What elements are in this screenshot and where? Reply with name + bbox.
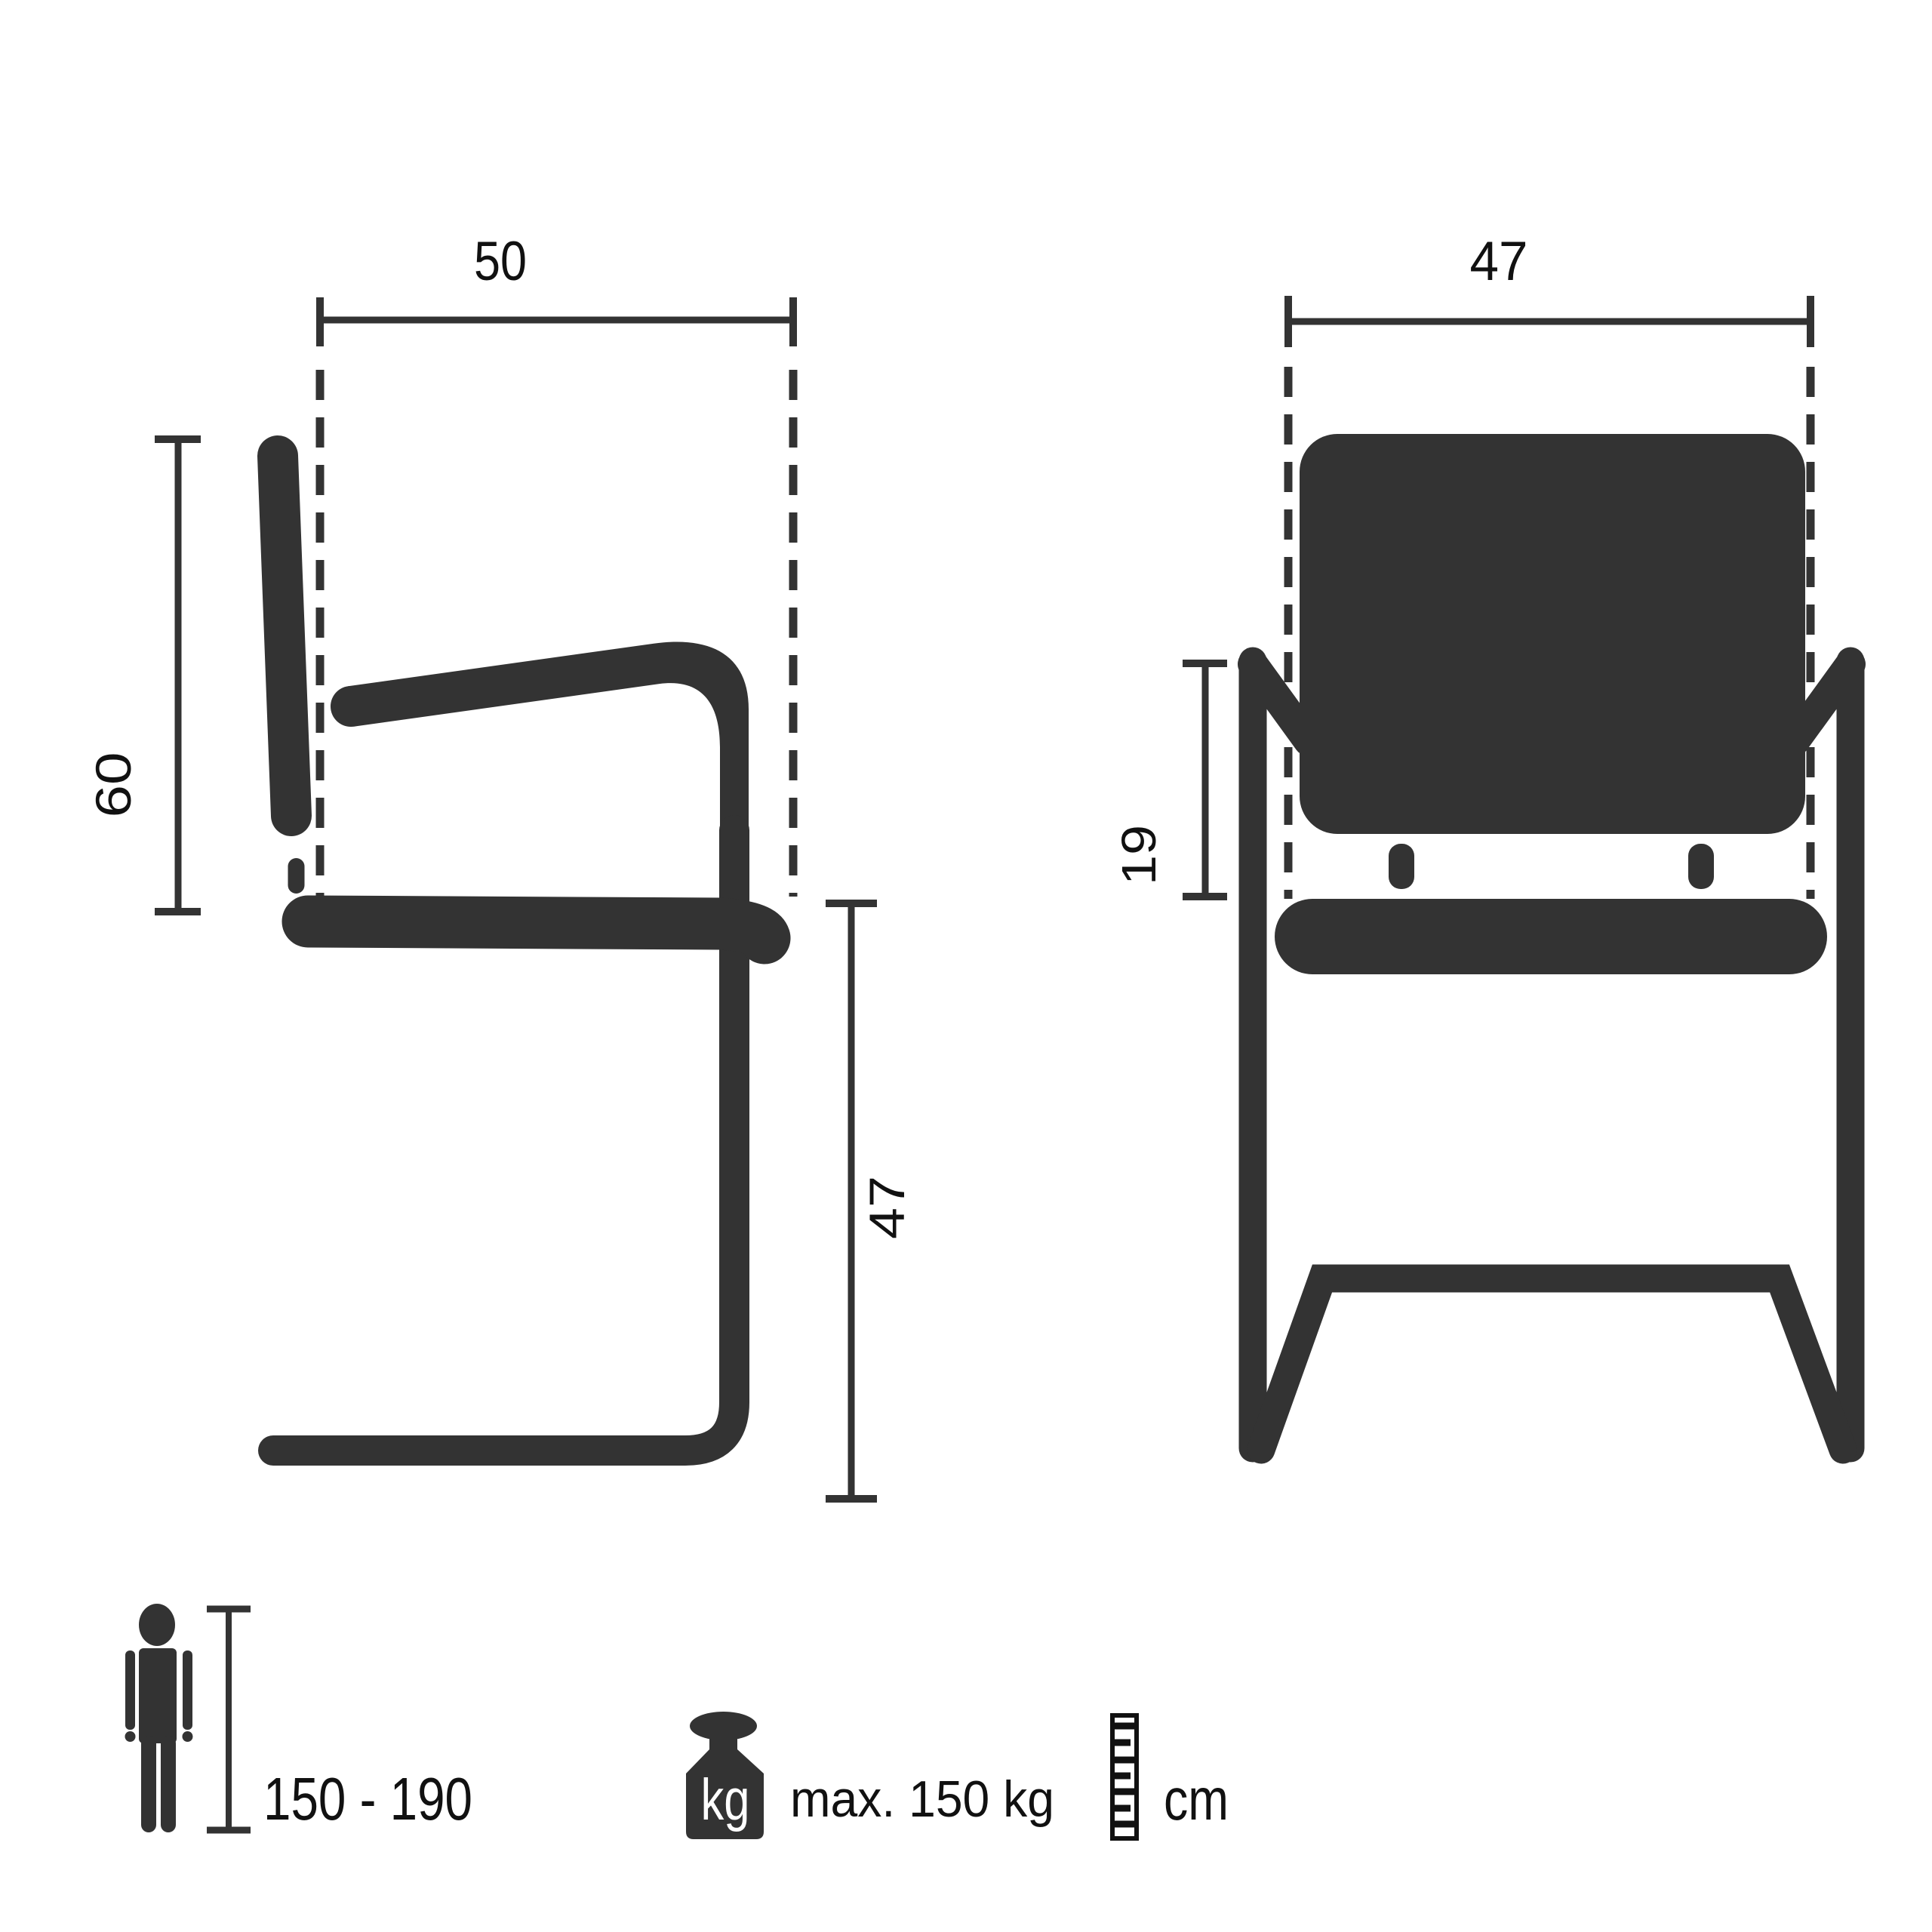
svg-text:19: 19 bbox=[1112, 825, 1166, 885]
svg-text:max. 150 kg: max. 150 kg bbox=[790, 1770, 1054, 1828]
svg-text:50: 50 bbox=[474, 231, 527, 292]
svg-text:60: 60 bbox=[85, 752, 141, 818]
svg-text:47: 47 bbox=[859, 1176, 915, 1239]
svg-text:47: 47 bbox=[1470, 231, 1528, 292]
svg-text:cm: cm bbox=[1164, 1766, 1229, 1832]
svg-text:150 - 190: 150 - 190 bbox=[263, 1765, 472, 1832]
svg-text:kg: kg bbox=[701, 1767, 750, 1832]
